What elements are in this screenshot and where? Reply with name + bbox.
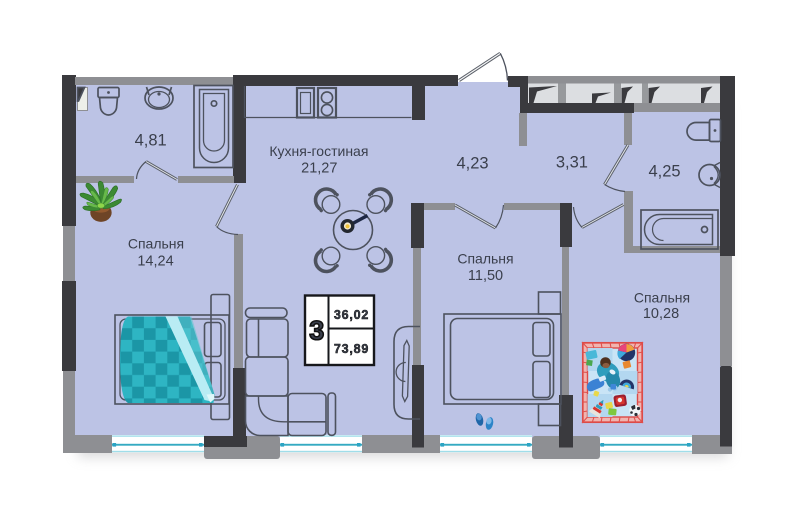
svg-text:14,24: 14,24 <box>137 254 173 270</box>
svg-text:3,31: 3,31 <box>556 154 588 172</box>
svg-text:36,02: 36,02 <box>334 308 369 322</box>
svg-text:Спальня: Спальня <box>128 236 184 252</box>
svg-text:4,25: 4,25 <box>648 163 680 181</box>
svg-text:Спальня: Спальня <box>634 290 690 306</box>
svg-text:4,81: 4,81 <box>135 132 167 150</box>
svg-text:73,89: 73,89 <box>334 342 369 356</box>
svg-text:21,27: 21,27 <box>301 161 337 177</box>
svg-text:10,28: 10,28 <box>643 306 679 322</box>
svg-text:Кухня-гостиная: Кухня-гостиная <box>269 143 368 159</box>
svg-text:3: 3 <box>309 316 324 346</box>
svg-text:4,23: 4,23 <box>456 155 488 173</box>
svg-text:11,50: 11,50 <box>468 268 503 284</box>
svg-text:Спальня: Спальня <box>457 251 513 267</box>
